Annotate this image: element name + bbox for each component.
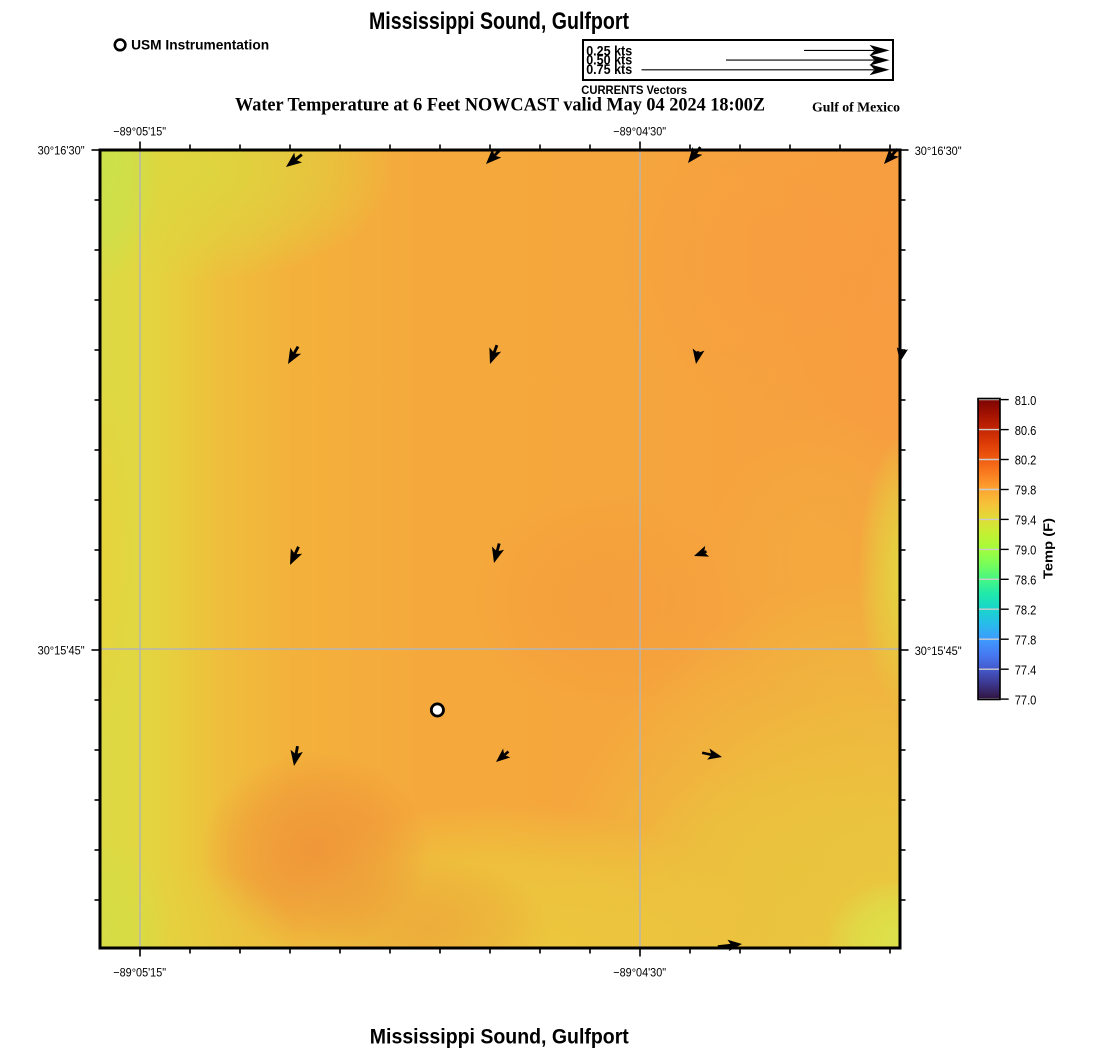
svg-text:30°16'30": 30°16'30" xyxy=(915,144,962,158)
svg-text:79.0: 79.0 xyxy=(1015,544,1037,558)
svg-text:−89°04'30": −89°04'30" xyxy=(613,966,666,980)
svg-text:Water Temperature at 6 Feet NO: Water Temperature at 6 Feet NOWCAST vali… xyxy=(235,95,765,116)
svg-text:−89°05'15": −89°05'15" xyxy=(113,124,166,138)
svg-text:−89°05'15": −89°05'15" xyxy=(113,966,166,980)
svg-text:30°15'45": 30°15'45" xyxy=(38,644,85,658)
svg-text:Gulf of Mexico: Gulf of Mexico xyxy=(812,100,900,115)
svg-text:79.8: 79.8 xyxy=(1015,484,1037,498)
svg-text:79.4: 79.4 xyxy=(1015,514,1037,528)
svg-text:78.2: 78.2 xyxy=(1015,604,1037,618)
svg-text:77.0: 77.0 xyxy=(1015,693,1037,707)
svg-text:80.2: 80.2 xyxy=(1015,454,1037,468)
svg-text:30°16'30": 30°16'30" xyxy=(38,144,85,158)
svg-text:−89°04'30": −89°04'30" xyxy=(613,124,666,138)
svg-text:81.0: 81.0 xyxy=(1015,394,1037,408)
svg-text:77.4: 77.4 xyxy=(1015,663,1037,677)
svg-text:Mississippi Sound, Gulfport: Mississippi Sound, Gulfport xyxy=(370,1024,629,1049)
svg-text:77.8: 77.8 xyxy=(1015,633,1037,647)
svg-text:Temp (F): Temp (F) xyxy=(1042,518,1056,579)
svg-text:80.6: 80.6 xyxy=(1015,424,1037,438)
svg-text:USM Instrumentation: USM Instrumentation xyxy=(131,37,269,53)
svg-text:30°15'45": 30°15'45" xyxy=(915,644,962,658)
svg-text:78.6: 78.6 xyxy=(1015,574,1037,588)
svg-text:0.75 kts: 0.75 kts xyxy=(586,62,632,77)
svg-text:Mississippi Sound, Gulfport: Mississippi Sound, Gulfport xyxy=(369,9,629,35)
